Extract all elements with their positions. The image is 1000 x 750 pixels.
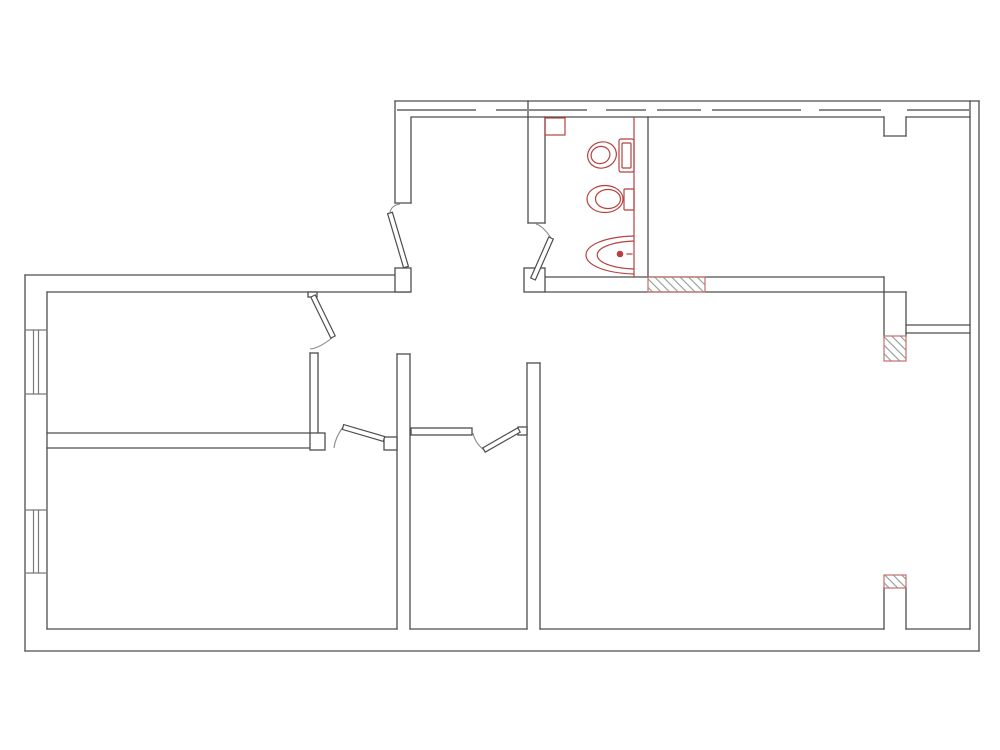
floorplan-page bbox=[0, 0, 1000, 750]
door-entry-hall-swing-arc bbox=[390, 204, 400, 212]
wall-hung-toilet-icon bbox=[624, 189, 634, 210]
door-post-entry bbox=[395, 268, 411, 292]
floorplan-canvas bbox=[0, 0, 1000, 750]
door-top-left-room-swing-arc bbox=[310, 337, 333, 349]
hatched-wall-section-2 bbox=[884, 336, 906, 361]
hatched-wall-section-1 bbox=[648, 277, 705, 292]
closet-partition-wall bbox=[411, 428, 472, 435]
door-jamb-tab-left-room bbox=[384, 437, 397, 450]
toilet-with-tank-icon bbox=[584, 138, 620, 172]
toilet-with-tank-icon bbox=[589, 144, 612, 166]
washbasin-icon bbox=[617, 251, 623, 257]
door-bathroom-swing-arc bbox=[536, 224, 551, 238]
door-top-left-room-leaf bbox=[311, 295, 335, 338]
toilet-with-tank-icon bbox=[622, 143, 631, 168]
hatched-wall-section-3 bbox=[884, 575, 906, 588]
wall-hung-toilet-icon bbox=[596, 190, 621, 209]
bathroom-duct-box bbox=[545, 118, 565, 135]
wall-post-divider bbox=[310, 433, 325, 450]
toilet-with-tank-icon bbox=[619, 139, 634, 172]
door-closet-leaf bbox=[483, 428, 520, 452]
door-entry-hall-leaf bbox=[388, 212, 409, 267]
washbasin-icon bbox=[597, 241, 634, 269]
door-lower-left-room-swing-arc bbox=[334, 427, 343, 448]
door-lower-left-room-leaf bbox=[342, 425, 384, 442]
